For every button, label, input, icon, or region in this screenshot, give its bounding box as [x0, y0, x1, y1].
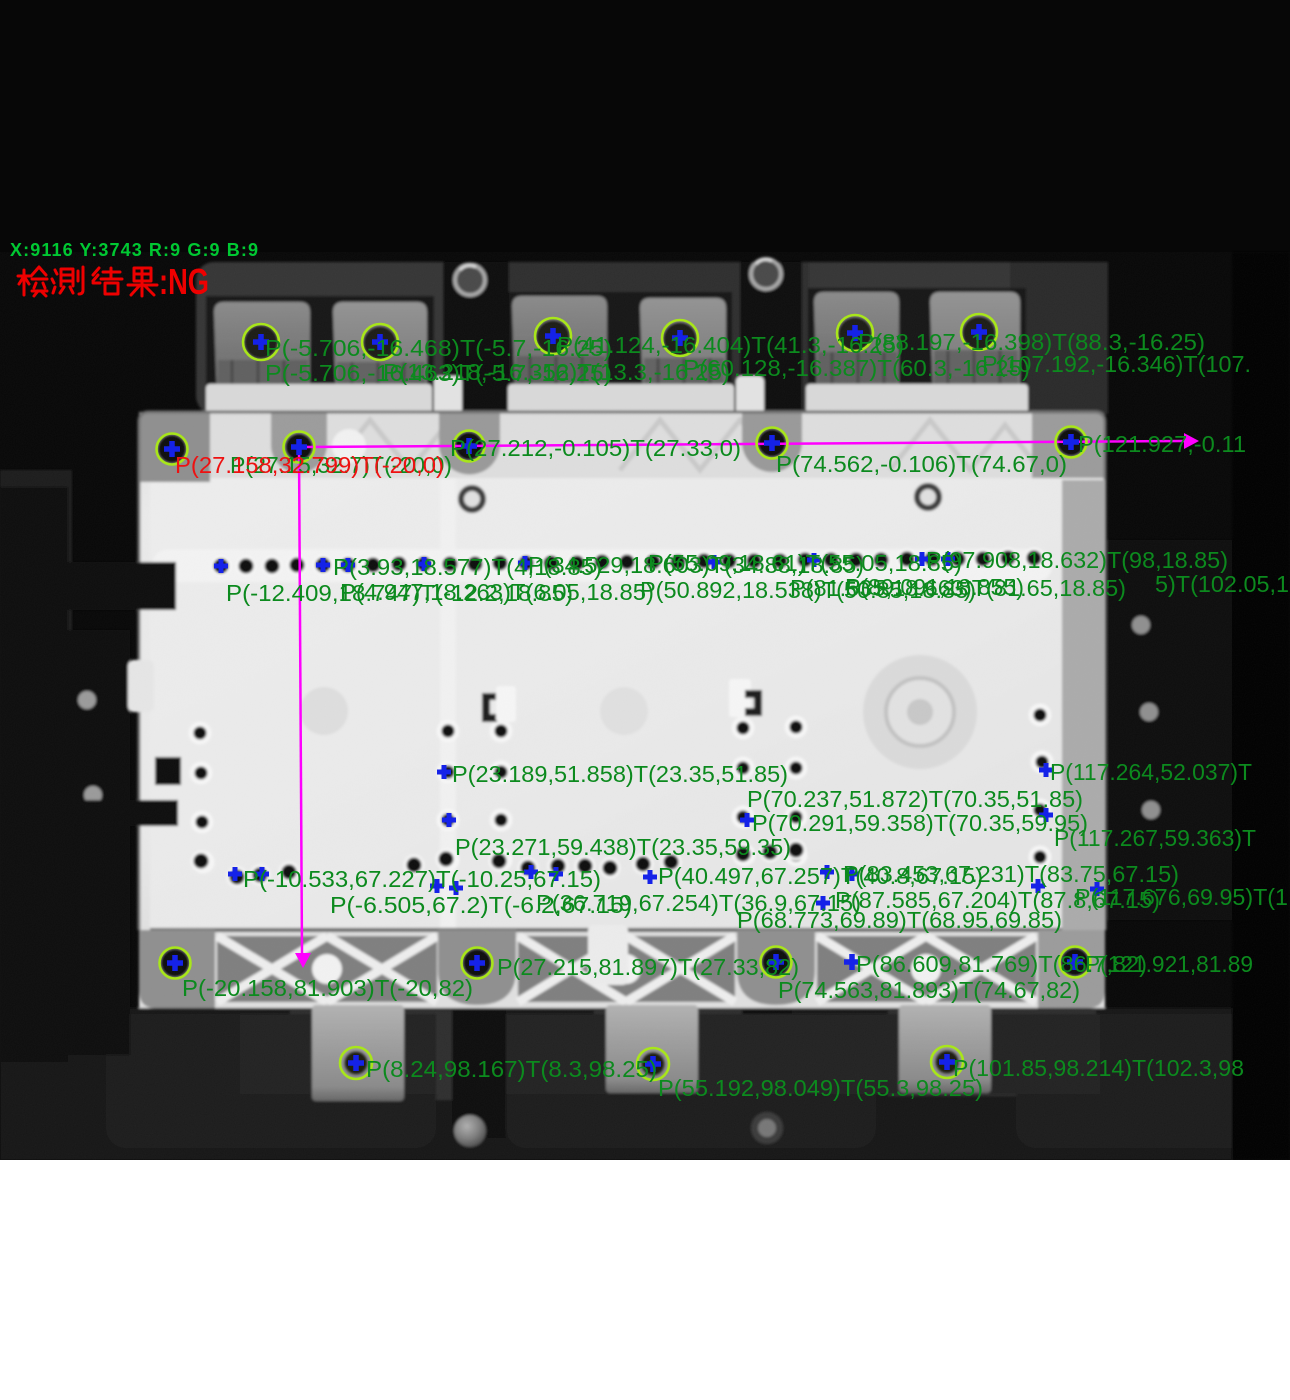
svg-text:P(-10.533,67.227)T(-10.25,67.1: P(-10.533,67.227)T(-10.25,67.15) — [243, 866, 601, 892]
svg-text:P(101.85,98.214)T(102.3,98: P(101.85,98.214)T(102.3,98 — [953, 1055, 1244, 1081]
svg-text:P(68.773,69.89)T(68.95,69.85): P(68.773,69.89)T(68.95,69.85) — [737, 907, 1062, 933]
svg-text:P(55.09,18.61)T(55.05,18.85): P(55.09,18.61)T(55.05,18.85) — [648, 550, 962, 576]
svg-text:P(55.192,98.049)T(55.3,98.25): P(55.192,98.049)T(55.3,98.25) — [658, 1075, 983, 1101]
svg-text:P(74.563,81.893)T(74.67,82): P(74.563,81.893)T(74.67,82) — [778, 977, 1080, 1003]
svg-text:P(121.921,81.89: P(121.921,81.89 — [1085, 951, 1253, 977]
svg-text:P(89.091,18.855): P(89.091,18.855) — [845, 574, 1024, 600]
svg-text:P(13.218,-16.352)T(13.3,-16.25: P(13.218,-16.352)T(13.3,-16.25) — [383, 359, 730, 385]
svg-text:P(-20.158,81.903)T(-20,82): P(-20.158,81.903)T(-20,82) — [182, 975, 473, 1001]
svg-text:P(23.271,59.438)T(23.35,59.35): P(23.271,59.438)T(23.35,59.35) — [455, 834, 791, 860]
svg-text:P(27.212,-0.105)T(27.33,0): P(27.212,-0.105)T(27.33,0) — [450, 435, 741, 461]
svg-text:P(70.291,59.358)T(70.35,59.95): P(70.291,59.358)T(70.35,59.95) — [752, 810, 1088, 836]
svg-text:P(4.947,18.263)T(6.05,18.85): P(4.947,18.263)T(6.05,18.85) — [340, 579, 654, 605]
svg-text:P(117.676,69.95)T(1: P(117.676,69.95)T(1 — [1075, 884, 1288, 910]
svg-text:P(27.158,32.799)T(-20,0): P(27.158,32.799)T(-20,0) — [175, 452, 444, 478]
svg-text:5)T(102.05,1: 5)T(102.05,1 — [1155, 571, 1289, 597]
svg-text:P(27.215,81.897)T(27.33,82): P(27.215,81.897)T(27.33,82) — [497, 954, 799, 980]
svg-text:P(8.24,98.167)T(8.3,98.25): P(8.24,98.167)T(8.3,98.25) — [366, 1056, 657, 1082]
svg-text::NG: :NG — [159, 261, 209, 302]
svg-text:P(117.264,52.037)T: P(117.264,52.037)T — [1050, 759, 1252, 785]
svg-text:X:9116 Y:3743 R:9 G:9 B:9: X:9116 Y:3743 R:9 G:9 B:9 — [10, 240, 258, 260]
svg-text:P(121.927,-0.11: P(121.927,-0.11 — [1078, 431, 1246, 457]
svg-text:P(107.192,-16.346)T(107.: P(107.192,-16.346)T(107. — [982, 351, 1251, 377]
svg-text:P(74.562,-0.106)T(74.67,0): P(74.562,-0.106)T(74.67,0) — [776, 451, 1067, 477]
svg-text:P(97.908,18.632)T(98,18.85): P(97.908,18.632)T(98,18.85) — [926, 547, 1228, 573]
svg-text:P(23.189,51.858)T(23.35,51.85): P(23.189,51.858)T(23.35,51.85) — [452, 761, 788, 787]
svg-text:P(70.237,51.872)T(70.35,51.85): P(70.237,51.872)T(70.35,51.85) — [747, 786, 1083, 812]
svg-text:P(60.128,-16.387)T(60.3,-16.25: P(60.128,-16.387)T(60.3,-16.25) — [683, 355, 1030, 381]
svg-text:P(117.267,59.363)T: P(117.267,59.363)T — [1054, 825, 1256, 851]
